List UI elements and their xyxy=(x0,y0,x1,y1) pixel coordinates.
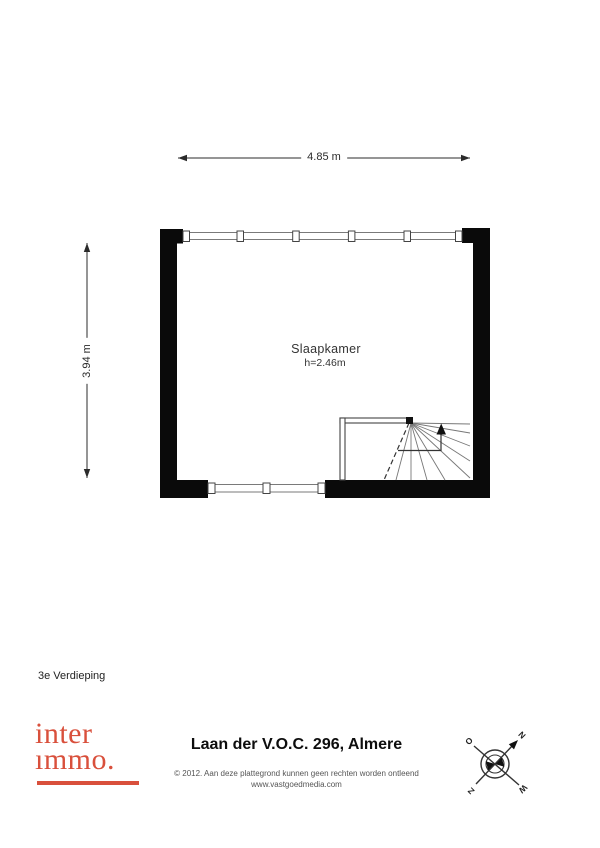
compass-rose: N O Z W xyxy=(463,729,529,796)
room-name-label: Slaapkamer xyxy=(291,342,361,356)
logo-line-2: ımmo. xyxy=(35,747,115,773)
wall-left xyxy=(160,229,177,498)
wall-right xyxy=(473,228,490,498)
website-label: www.vastgoedmedia.com xyxy=(154,779,439,790)
logo-underline xyxy=(37,781,139,785)
stair-treads xyxy=(396,423,470,480)
compass-letter-n: N xyxy=(516,729,527,740)
window-top xyxy=(183,231,462,242)
window-bottom xyxy=(208,483,325,494)
wall-corner-top-left xyxy=(160,229,183,244)
copyright-line: © 2012. Aan deze plattegrond kunnen geen… xyxy=(154,768,439,779)
dimension-width-label: 4.85 m xyxy=(301,151,347,163)
floorplan-page: N O Z W 4.85 m 3.94 m Slaapkamer h=2.46m… xyxy=(0,0,600,848)
compass-letter-o: O xyxy=(463,735,475,747)
address-block: Laan der V.O.C. 296, Almere © 2012. Aan … xyxy=(154,736,439,790)
interimmo-logo: inter ımmo. xyxy=(35,721,115,773)
address-title: Laan der V.O.C. 296, Almere xyxy=(154,736,439,754)
staircase xyxy=(340,417,470,480)
copyright-block: © 2012. Aan deze plattegrond kunnen geen… xyxy=(154,768,439,790)
stair-enclosure-walls xyxy=(340,418,411,480)
wall-bottom-right xyxy=(325,480,490,498)
wall-corner-bottom-left xyxy=(160,480,208,498)
dimension-depth-label: 3.94 m xyxy=(81,338,93,384)
stair-wall-endcap xyxy=(406,417,413,424)
floor-level-label: 3e Verdieping xyxy=(38,670,105,682)
stair-headroom-dashed-line xyxy=(384,423,409,480)
compass-letter-z: Z xyxy=(466,786,477,797)
room-height-label: h=2.46m xyxy=(304,357,345,369)
